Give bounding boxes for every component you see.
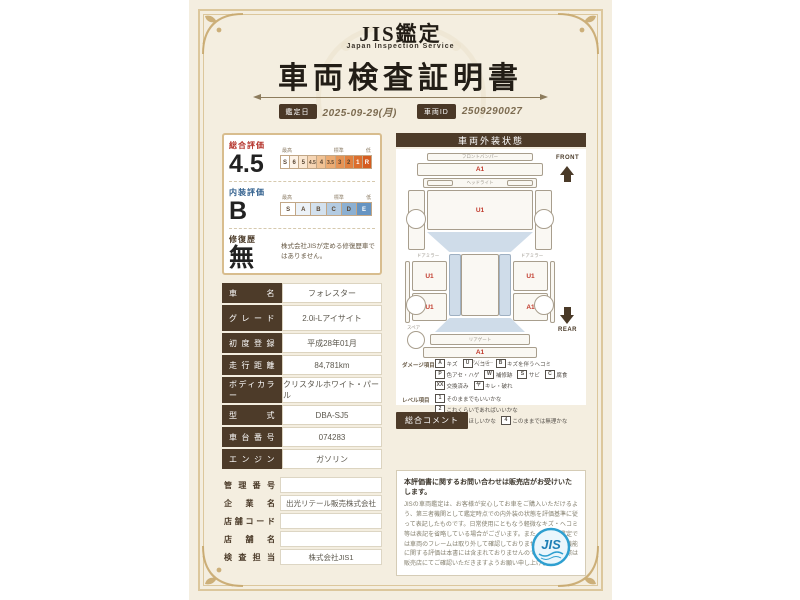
legend-item: ヤキレ・破れ (474, 381, 513, 390)
disclaimer-heading: 本評価書に関するお問い合わせは販売店がお受けいたします。 (404, 477, 578, 497)
damage-mark: A1 (476, 349, 484, 356)
scale-cell: B (310, 202, 326, 216)
rear-bumper-part: A1 (423, 347, 537, 358)
scale-head-high: 最高 (282, 194, 292, 201)
legend-item: XX交換済み (435, 381, 469, 390)
table-row: 車台番号 074283 (222, 427, 382, 447)
headlight-right-part (507, 180, 533, 186)
part-label: リアゲート (469, 337, 492, 343)
scale-cell: D (341, 202, 357, 216)
row-value: 2.0i-Lアイサイト (282, 305, 382, 331)
vehicle-id-value: 2509290027 (462, 106, 523, 117)
evaluation-box: 総合評価 4.5 最高 標準 低 S 6 5 4.5 4 3.5 3 2 (222, 133, 382, 275)
legend-text: キズ (447, 360, 458, 368)
legend-item: W補修跡 (484, 370, 512, 379)
scale-head-high: 最高 (282, 147, 292, 154)
scale-cell: S (280, 202, 296, 216)
scale-cell: C (326, 202, 342, 216)
front-tire-right (534, 209, 554, 229)
legend-text: そのままでもいいかな (447, 395, 502, 403)
repair-history-value: 無 (229, 246, 281, 271)
table-row: グレード 2.0i-Lアイサイト (222, 305, 382, 331)
scale-head-low: 低 (366, 147, 371, 154)
legend-code: A (435, 359, 445, 368)
legend-code: 1 (435, 394, 445, 403)
side-sill-left-part (405, 261, 410, 323)
legend-code: P (435, 370, 445, 379)
table-row: 企業名 出光リテール販売株式会社 (222, 495, 382, 511)
table-row: 店舗名 (222, 531, 382, 547)
row-label: エンジン (229, 454, 275, 465)
row-value: 株式会社JIS1 (280, 549, 382, 565)
row-label: 車名 (229, 288, 275, 299)
legend-text: 色アセ・ハゲ (447, 371, 480, 379)
repair-history-section: 修復歴 無 株式会社JISが定める修復歴車ではありません。 (229, 229, 375, 275)
row-value (280, 477, 382, 493)
legend-code: 4 (501, 416, 511, 425)
legend-code: B (496, 359, 506, 368)
scale-head-low: 低 (366, 194, 371, 201)
legend-item: Aキズ (435, 359, 458, 368)
row-value: 074283 (282, 427, 382, 447)
inspection-date-value: 2025-09-29(月) (323, 104, 397, 119)
legend-code: C (545, 370, 555, 379)
front-door-right-part: U1 (513, 261, 548, 291)
front-door-left-part: U1 (412, 261, 447, 291)
legend-text: ヘコミ (474, 360, 491, 368)
row-label: 店舗名 (224, 534, 275, 545)
damage-mark: U1 (526, 273, 534, 280)
side-window-right-part (499, 254, 511, 316)
dealer-info-table: 管理番号 企業名 出光リテール販売株式会社 店舗コード 店舗名 検査担当 株式会… (222, 477, 382, 567)
legend-item: C腐食 (545, 370, 568, 379)
damage-mark: U1 (425, 304, 433, 311)
exterior-panel: FRONT REAR フロントバンパー A1 ヘッドライト U1 (396, 149, 586, 405)
front-label: FRONT (556, 155, 579, 161)
legend-text: 補修跡 (496, 371, 513, 379)
scale-cell: A (295, 202, 311, 216)
vehicle-spec-table: 車名 フォレスター グレード 2.0i-Lアイサイト 初度登録 平成28年01月… (222, 283, 382, 471)
overall-rating-value: 4.5 (229, 152, 281, 177)
legend-text: キズを伴うヘコミ (507, 360, 551, 368)
interior-rating-section: 内装評価 B 最高 標準 低 S A B C D E (229, 182, 375, 229)
exterior-section-header: 車両外装状態 (396, 133, 586, 147)
table-row: 初度登録 平成28年01月 (222, 333, 382, 353)
rear-tire-right (534, 295, 554, 315)
row-label: 初度登録 (229, 338, 275, 349)
table-row: 走行距離 84,781km (222, 355, 382, 375)
repair-history-note: 株式会社JISが定める修復歴車ではありません。 (281, 242, 375, 263)
table-row: 店舗コード (222, 513, 382, 529)
table-row: 車名 フォレスター (222, 283, 382, 303)
rear-tire-left (406, 295, 426, 315)
table-row: ボディカラー クリスタルホワイト・パール (222, 377, 382, 403)
jis-stamp-logo: JIS (531, 527, 571, 567)
legend-code: ヤ (474, 381, 484, 390)
spare-tire (407, 331, 425, 349)
rear-gate-part: リアゲート (430, 334, 530, 345)
row-label: 検査担当 (224, 552, 275, 563)
row-value (280, 531, 382, 547)
bonnet-part: U1 (427, 190, 533, 230)
row-label: 型式 (229, 410, 275, 421)
title-divider (261, 97, 540, 98)
legend-text: キレ・破れ (485, 382, 513, 390)
damage-mark: U1 (425, 273, 433, 280)
part-label: ヘッドライト (467, 180, 494, 186)
headlight-left-part (427, 180, 453, 186)
row-label: 管理番号 (224, 480, 275, 491)
spare-tire-label: スペア (407, 325, 420, 331)
interior-rating-scale: 最高 標準 低 S A B C D E (281, 194, 372, 216)
rear-arrow-icon (564, 307, 571, 315)
legend-item: 4このままでは無理かな (501, 416, 568, 425)
row-value (280, 513, 382, 529)
legend-item: Uヘコミ (463, 359, 491, 368)
legend-text: このままでは無理かな (512, 417, 567, 425)
row-label: ボディカラー (229, 379, 275, 401)
table-row: 型式 DBA-SJ5 (222, 405, 382, 425)
row-label: 企業名 (224, 498, 275, 509)
car-exterior-diagram: フロントバンパー A1 ヘッドライト U1 ドアミラー ドアミラー (405, 153, 555, 355)
row-value: 平成28年01月 (282, 333, 382, 353)
table-row: 検査担当 株式会社JIS1 (222, 549, 382, 565)
legend-text: サビ (529, 371, 540, 379)
damage-mark: A1 (476, 166, 484, 173)
row-value: ガソリン (282, 449, 382, 469)
legend-item: Bキズを伴うヘコミ (496, 359, 552, 368)
damage-mark: U1 (476, 207, 484, 214)
row-label: 車台番号 (229, 432, 275, 443)
legend-text: 交換済み (447, 382, 469, 390)
legend-item: Sサビ (517, 370, 540, 379)
overall-rating-section: 総合評価 4.5 最高 標準 低 S 6 5 4.5 4 3.5 3 2 (229, 135, 375, 182)
interior-rating-value: B (229, 199, 281, 224)
row-value: クリスタルホワイト・パール (282, 377, 382, 403)
row-label: 走行距離 (229, 360, 275, 371)
legend-item: P色アセ・ハゲ (435, 370, 479, 379)
roof-part (461, 254, 499, 316)
legend-item: 1そのままでもいいかな (435, 394, 501, 403)
overall-comment-label: 総合コメント (396, 412, 468, 429)
row-value: フォレスター (282, 283, 382, 303)
rear-arrow-icon (560, 315, 574, 324)
row-label: 店舗コード (224, 516, 275, 527)
door-mirror-right-label: ドアミラー (511, 253, 553, 259)
damage-legend-label: ダメージ項目 (402, 359, 435, 390)
legend-code: W (484, 370, 494, 379)
inspection-date-badge: 鑑定日 2025-09-29(月) (279, 104, 397, 119)
row-value: DBA-SJ5 (282, 405, 382, 425)
front-bumper-part: A1 (417, 163, 543, 176)
legend-code: XX (435, 381, 445, 390)
document-title: 車両検査証明書 (189, 53, 612, 97)
side-window-left-part (449, 254, 461, 316)
front-arrow-icon (564, 174, 571, 182)
front-bumper-top-part: フロントバンパー (427, 153, 533, 161)
legend-text: 腐食 (556, 371, 567, 379)
inspection-date-label: 鑑定日 (279, 104, 317, 119)
side-sill-right-part (550, 261, 555, 323)
row-value: 84,781km (282, 355, 382, 375)
rear-label: REAR (558, 327, 577, 333)
door-mirror-left-label: ドアミラー (407, 253, 449, 259)
scale-cell: R (362, 155, 372, 169)
overall-rating-scale: 最高 標準 低 S 6 5 4.5 4 3.5 3 2 1 R (281, 147, 372, 169)
legend-code: U (463, 359, 473, 368)
disclaimer-box: 本評価書に関するお問い合わせは販売店がお受けいたします。 JISの車両鑑定は、お… (396, 470, 586, 576)
windshield-part (427, 232, 533, 252)
vehicle-id-label: 車両ID (417, 104, 456, 119)
front-tire-left (406, 209, 426, 229)
interior-rating-label: 内装評価 (229, 187, 281, 198)
part-label: フロントバンパー (462, 154, 498, 160)
scale-cell: E (356, 202, 372, 216)
table-row: エンジン ガソリン (222, 449, 382, 469)
header-badges: 鑑定日 2025-09-29(月) 車両ID 2509290027 (189, 104, 612, 119)
svg-text:JIS: JIS (541, 537, 561, 552)
overall-rating-label: 総合評価 (229, 140, 281, 151)
repair-history-label: 修復歴 (229, 234, 281, 245)
scale-head-mid: 標準 (334, 147, 344, 154)
vehicle-id-badge: 車両ID 2509290027 (417, 104, 523, 119)
rear-window-part (435, 318, 525, 332)
row-value: 出光リテール販売株式会社 (280, 495, 382, 511)
legend-code: S (517, 370, 527, 379)
brand-subtitle: Japan Inspection Service (189, 43, 612, 50)
table-row: 管理番号 (222, 477, 382, 493)
row-label: グレード (229, 313, 275, 324)
certificate-page: JIS鑑定 Japan Inspection Service 車両検査証明書 鑑… (189, 0, 612, 600)
scale-head-mid: 標準 (334, 194, 344, 201)
